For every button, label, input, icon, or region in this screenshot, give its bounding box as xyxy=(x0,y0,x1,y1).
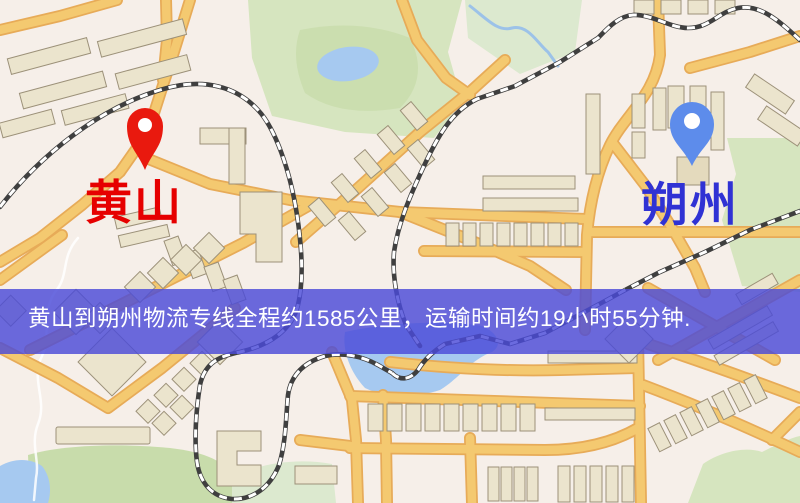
route-info-banner: 黄山到朔州物流专线全程约1585公里，运输时间约19小时55分钟. xyxy=(0,289,800,354)
map-canvas xyxy=(0,0,800,503)
destination-city-label: 朔州 xyxy=(641,181,739,228)
origin-city-label: 黄山 xyxy=(85,179,183,226)
route-info-text: 黄山到朔州物流专线全程约1585公里，运输时间约19小时55分钟. xyxy=(28,308,691,331)
logistics-route-map: 黄山 朔州 黄山到朔州物流专线全程约1585公里，运输时间约19小时55分钟. xyxy=(0,0,800,503)
